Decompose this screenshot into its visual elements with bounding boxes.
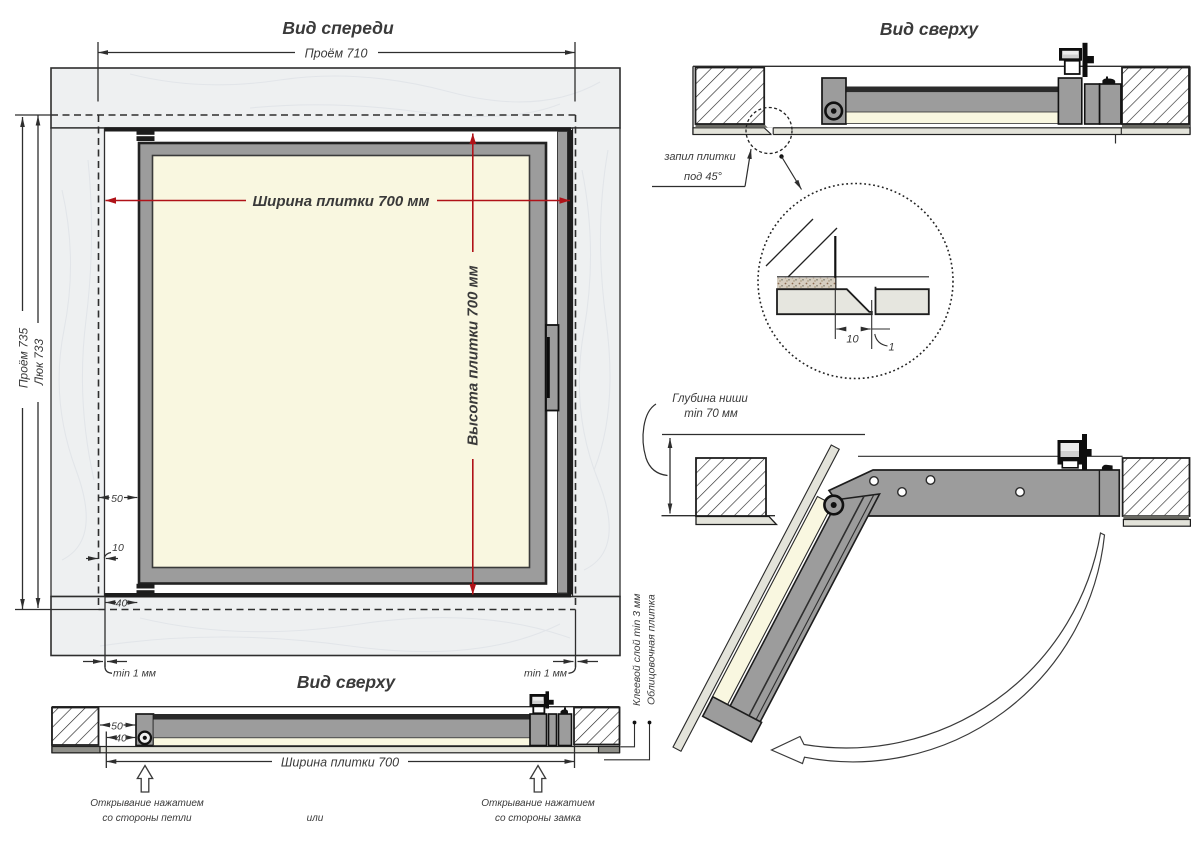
svg-text:под 45°: под 45°	[684, 171, 723, 183]
svg-text:1: 1	[888, 342, 894, 354]
svg-text:со стороны петли: со стороны петли	[102, 813, 192, 824]
svg-text:Глубина ниши: Глубина ниши	[672, 393, 748, 405]
svg-text:Люк 733: Люк 733	[32, 339, 46, 387]
svg-text:Высота плитки 700 мм: Высота плитки 700 мм	[465, 265, 482, 445]
svg-text:или: или	[307, 813, 324, 824]
svg-text:Ширина плитки 700 мм: Ширина плитки 700 мм	[252, 193, 429, 210]
svg-text:min 1 мм: min 1 мм	[113, 668, 156, 680]
svg-text:40: 40	[115, 733, 127, 745]
svg-text:min 1 мм: min 1 мм	[524, 668, 567, 680]
svg-text:Вид спереди: Вид спереди	[282, 18, 394, 38]
svg-text:Облицовочная плитка: Облицовочная плитка	[646, 594, 658, 705]
svg-text:Проём 735: Проём 735	[17, 328, 31, 389]
svg-text:10: 10	[846, 334, 859, 346]
svg-text:50: 50	[111, 720, 123, 732]
svg-text:Вид сверху: Вид сверху	[880, 19, 980, 39]
svg-text:min 70 мм: min 70 мм	[684, 408, 738, 420]
svg-text:Открывание нажатием: Открывание нажатием	[90, 798, 204, 809]
svg-text:Ширина плитки 700: Ширина плитки 700	[281, 756, 399, 770]
svg-text:со стороны замка: со стороны замка	[495, 813, 582, 824]
svg-text:10: 10	[112, 542, 124, 554]
svg-text:Клеевой слой min 3 мм: Клеевой слой min 3 мм	[631, 594, 643, 706]
svg-text:Открывание нажатием: Открывание нажатием	[481, 798, 595, 809]
svg-text:40: 40	[116, 598, 128, 610]
svg-text:Проём 710: Проём 710	[305, 47, 368, 61]
svg-text:запил плитки: запил плитки	[663, 151, 735, 163]
svg-text:Вид сверху: Вид сверху	[297, 672, 397, 692]
svg-text:50: 50	[111, 493, 123, 505]
